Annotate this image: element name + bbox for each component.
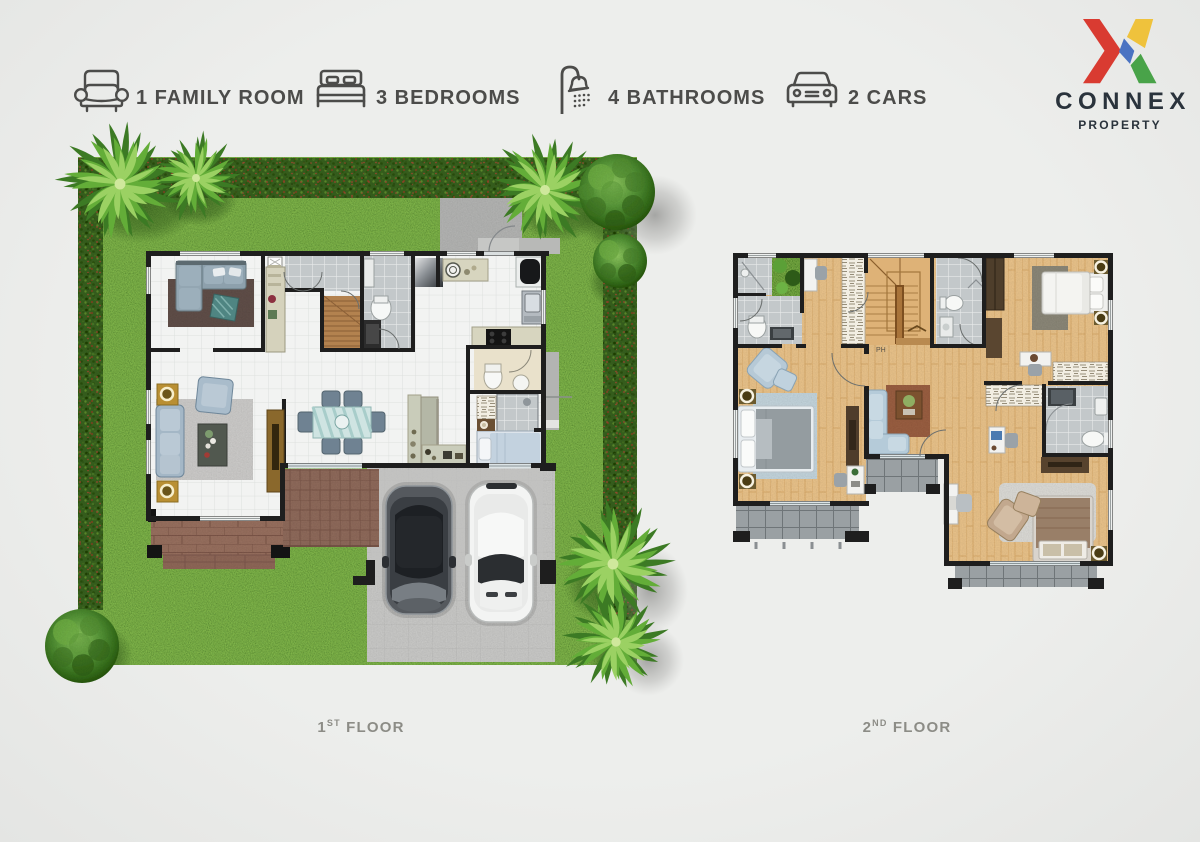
svg-text:PH: PH xyxy=(876,347,886,354)
